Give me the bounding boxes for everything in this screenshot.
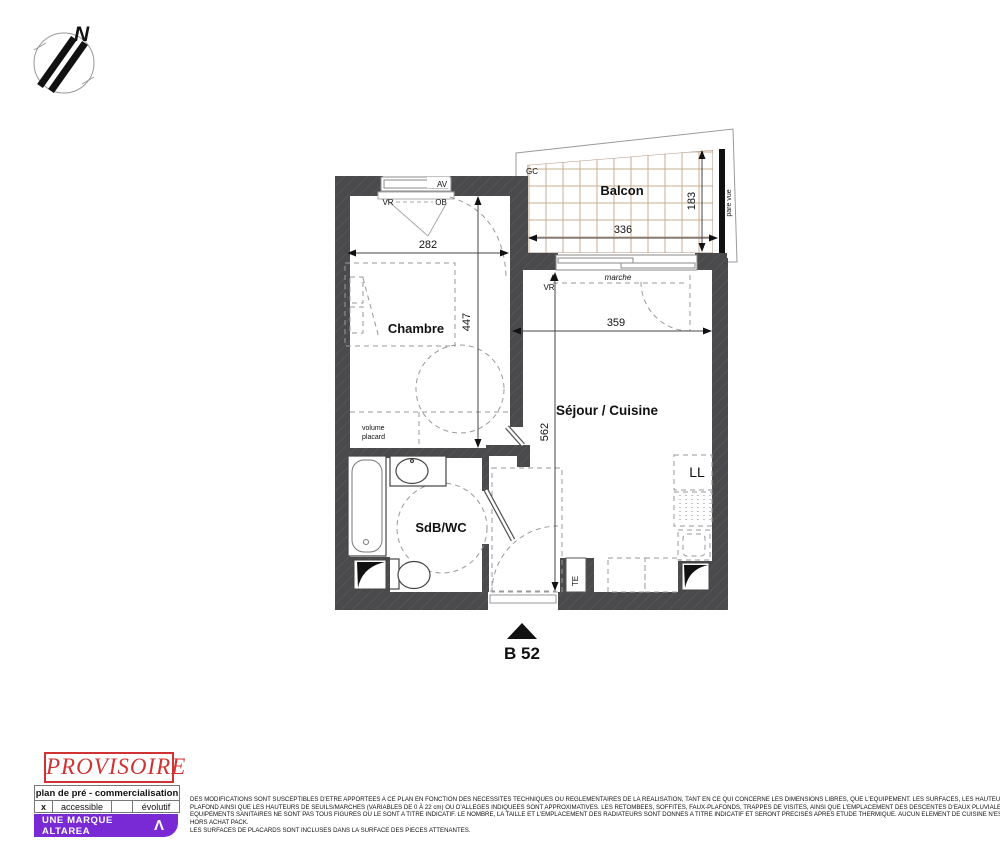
disclaimer-line: EQUIPEMENTS SANITAIRES NE SONT PAS TOUS … — [190, 811, 995, 819]
balcony-tag-gc: GC — [526, 167, 538, 176]
te-box: TE — [566, 558, 586, 592]
toilet — [386, 559, 430, 589]
north-compass: N — [34, 23, 94, 93]
entry-threshold — [490, 591, 556, 603]
volume-placard-label: placard — [362, 434, 385, 441]
disclaimer-line: LES SURFACES DE PLACARDS SONT INCLUSES D… — [190, 827, 995, 835]
entrance-arrow — [507, 623, 537, 639]
dimension-chambre-depth: 447 — [461, 197, 478, 447]
svg-text:447: 447 — [461, 313, 473, 331]
room-label-balcon: Balcon — [600, 183, 643, 198]
altarea-logo-icon: Λ — [154, 817, 178, 834]
marche-label: marche — [605, 273, 632, 282]
worktop-dots — [680, 495, 710, 523]
accessible-checkbox: x — [34, 800, 53, 813]
ob-label: OB — [435, 198, 447, 207]
te-label: TE — [571, 576, 580, 586]
dimension-chambre-width: 282 — [348, 239, 508, 253]
accessibility-row: x accessible évolutif — [34, 800, 180, 813]
provisoire-stamp: PROVISOIRE — [44, 752, 174, 783]
disclaimer-text: DES MODIFICATIONS SONT SUSCEPTIBLES D'ET… — [190, 796, 995, 835]
duct-shaft-right — [678, 561, 712, 592]
entry-door-swing — [492, 526, 558, 592]
vr-window-label: VR — [382, 198, 393, 207]
floor-plan-page: N GC Balcon pare vue 336 183 — [0, 0, 1000, 857]
svg-text:562: 562 — [539, 423, 551, 441]
disclaimer-line: HORS ACHAT PACK. — [190, 819, 995, 827]
privacy-screen — [719, 149, 725, 254]
room-label-sdb-wc: SdB/WC — [415, 520, 467, 535]
dimension-sejour-width: 359 — [513, 317, 711, 331]
washing-machine-label: LL — [689, 464, 705, 480]
bay-window — [556, 255, 697, 270]
disclaimer-line: DES MODIFICATIONS SONT SUSCEPTIBLES D'ET… — [190, 796, 995, 804]
svg-text:359: 359 — [607, 317, 625, 329]
bay-door-swing — [641, 282, 690, 331]
bathtub — [348, 456, 386, 556]
kitchen-unit — [608, 558, 645, 592]
av-label: AV — [437, 180, 448, 189]
floor-plan-canvas: N GC Balcon pare vue 336 183 — [0, 0, 1000, 700]
north-label: N — [74, 23, 90, 46]
svg-text:336: 336 — [614, 224, 632, 236]
disclaimer-line: PLAFOND AINSI QUE LES HAUTEURS DE SEUILS… — [190, 804, 995, 812]
pare-vue-label: pare vue — [726, 189, 733, 216]
brand-banner: UNE MARQUE ALTAREA Λ — [34, 814, 178, 837]
washbasin — [390, 456, 446, 486]
evolutif-label: évolutif — [133, 800, 180, 813]
room-label-chambre: Chambre — [388, 321, 444, 336]
accessible-label: accessible — [53, 800, 112, 813]
svg-text:282: 282 — [419, 239, 437, 251]
room-label-sejour-cuisine: Séjour / Cuisine — [556, 403, 659, 418]
entry-zone — [492, 468, 562, 592]
volume-placard-label: volume — [362, 425, 385, 432]
vr-bay-label: VR — [543, 283, 554, 292]
unit-label: B 52 — [504, 644, 540, 663]
svg-text:183: 183 — [686, 192, 698, 210]
turning-circle-chambre — [416, 345, 504, 433]
evolutif-checkbox — [112, 800, 133, 813]
duct-shaft-left — [350, 557, 390, 592]
balcony: GC Balcon pare vue 336 183 — [516, 129, 737, 262]
dimension-sejour-depth: 562 — [539, 273, 555, 590]
kitchen-unit — [645, 558, 680, 592]
brand-label: UNE MARQUE ALTAREA — [34, 815, 154, 837]
